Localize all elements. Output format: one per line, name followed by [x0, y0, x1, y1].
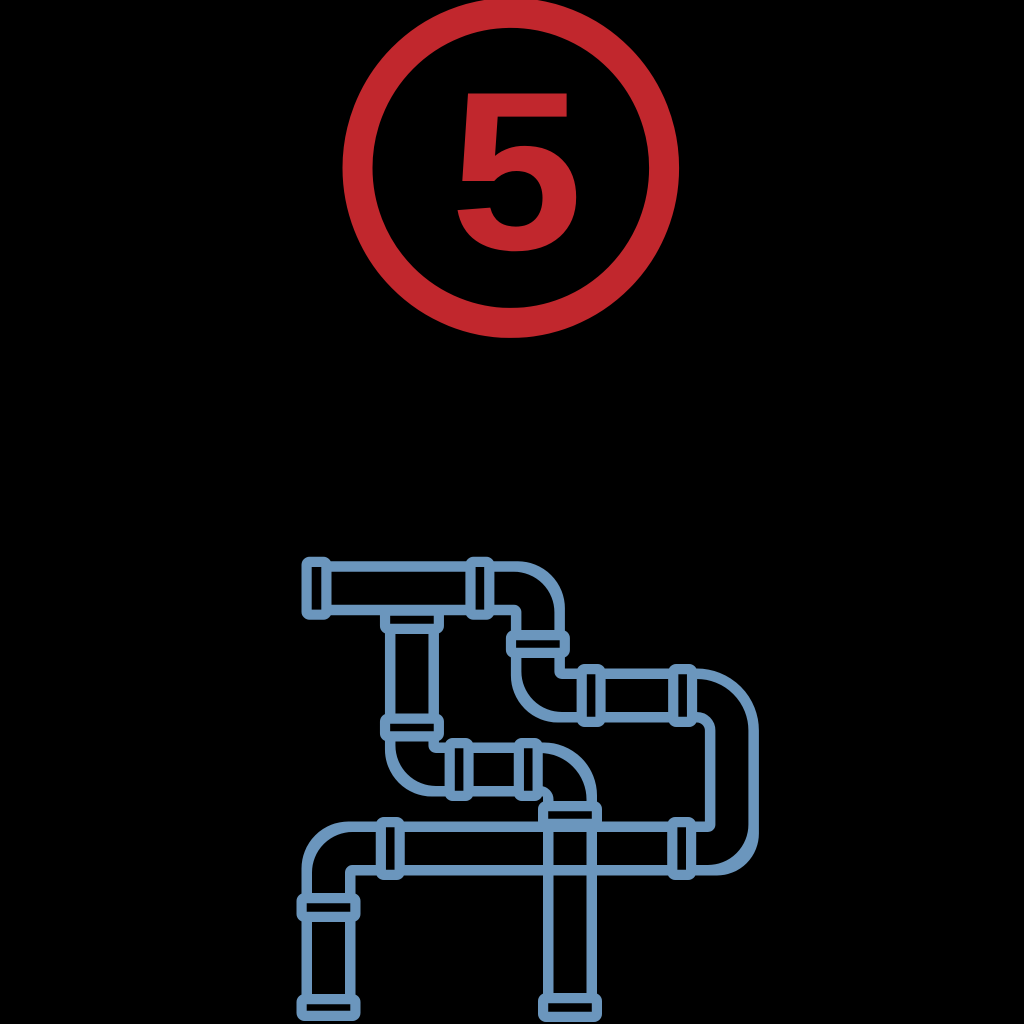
svg-text:5: 5	[450, 46, 583, 298]
